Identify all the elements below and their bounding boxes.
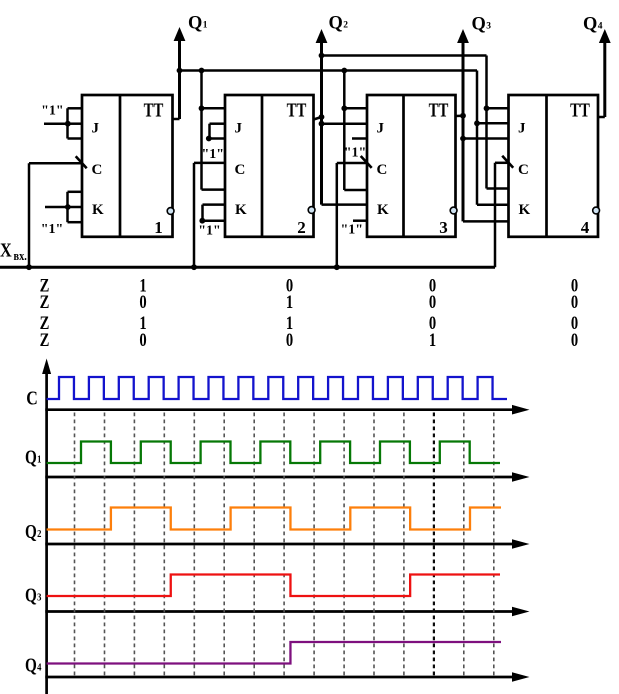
svg-text:K: K <box>377 202 389 218</box>
svg-text:J: J <box>235 121 243 137</box>
svg-text:Z: Z <box>40 291 50 312</box>
svg-text:0: 0 <box>429 291 436 312</box>
svg-text:Q: Q <box>25 584 37 606</box>
svg-text:1: 1 <box>286 291 293 312</box>
svg-text:"1": "1" <box>41 104 64 119</box>
svg-text:0: 0 <box>571 291 578 312</box>
svg-text:0: 0 <box>571 329 578 350</box>
svg-text:0: 0 <box>139 329 146 350</box>
svg-text:K: K <box>519 202 531 218</box>
svg-text:Q: Q <box>329 12 343 33</box>
svg-text:C: C <box>377 162 388 178</box>
svg-text:Q: Q <box>25 446 37 468</box>
svg-text:1: 1 <box>429 329 436 350</box>
svg-text:"1": "1" <box>198 224 221 239</box>
svg-text:Q: Q <box>472 13 486 34</box>
svg-text:C: C <box>235 162 246 178</box>
svg-text:Q: Q <box>188 12 202 33</box>
svg-text:C: C <box>518 162 529 178</box>
svg-text:Z: Z <box>40 329 50 350</box>
svg-text:TT: TT <box>144 98 164 121</box>
svg-text:1: 1 <box>203 19 208 30</box>
svg-text:3: 3 <box>37 591 41 603</box>
svg-text:4: 4 <box>598 20 603 31</box>
svg-text:Q: Q <box>583 13 597 34</box>
svg-text:"1": "1" <box>202 147 225 162</box>
svg-text:0: 0 <box>286 329 293 350</box>
svg-text:вх.: вх. <box>14 250 27 263</box>
svg-text:"1": "1" <box>341 222 364 237</box>
svg-text:2: 2 <box>37 528 41 540</box>
svg-text:TT: TT <box>429 98 449 121</box>
svg-text:K: K <box>92 202 104 218</box>
svg-text:X: X <box>0 239 12 261</box>
svg-text:2: 2 <box>343 19 348 30</box>
svg-text:Q: Q <box>25 654 37 676</box>
svg-text:3: 3 <box>486 20 491 31</box>
svg-text:TT: TT <box>287 98 307 121</box>
svg-text:J: J <box>92 121 100 137</box>
svg-text:C: C <box>26 387 38 409</box>
svg-text:K: K <box>235 202 247 218</box>
svg-text:2: 2 <box>297 218 306 237</box>
svg-text:J: J <box>518 121 526 137</box>
svg-text:4: 4 <box>37 661 41 673</box>
svg-text:Q: Q <box>25 520 37 542</box>
svg-text:TT: TT <box>570 98 590 121</box>
svg-text:J: J <box>377 121 385 137</box>
svg-text:0: 0 <box>139 291 146 312</box>
svg-text:C: C <box>92 162 103 178</box>
svg-text:"1": "1" <box>41 222 64 237</box>
svg-text:1: 1 <box>154 218 163 237</box>
svg-text:1: 1 <box>37 453 41 465</box>
svg-text:3: 3 <box>439 218 448 237</box>
svg-text:4: 4 <box>581 218 590 237</box>
